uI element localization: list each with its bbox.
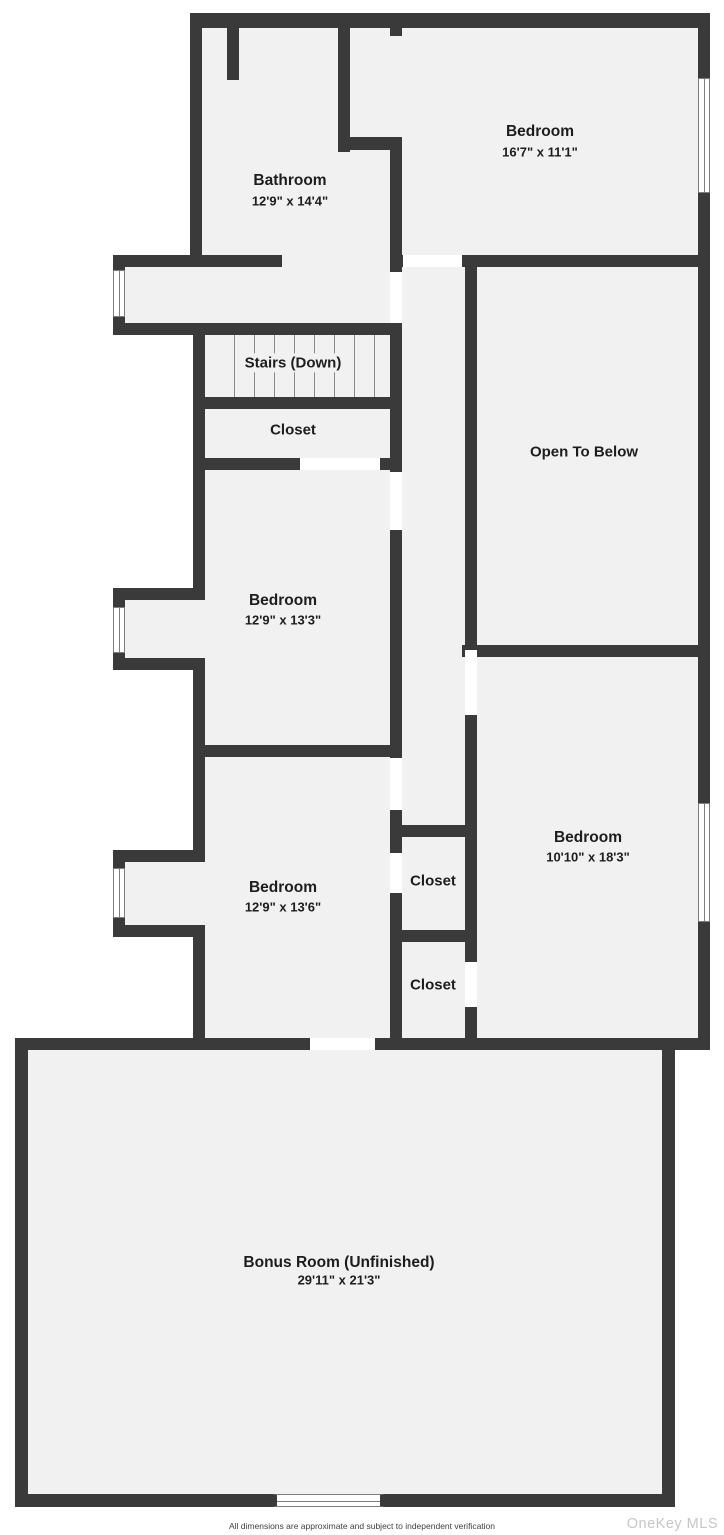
window-hallway xyxy=(113,270,125,317)
label-bedroom-lower-name: Bedroom xyxy=(249,879,317,897)
wall-bonus-left xyxy=(15,1038,28,1507)
wall-alcove3-bottom xyxy=(113,925,205,937)
wall-alcove3-top xyxy=(113,850,205,862)
wall-bedroom-mid-bottom xyxy=(193,745,402,757)
label-bedroom-mid-name: Bedroom xyxy=(249,592,317,610)
wall-closet1-top xyxy=(390,825,477,837)
door-bedroom-mid xyxy=(390,472,402,530)
label-bedroom-mid-dims: 12'9" x 13'3" xyxy=(245,614,321,629)
onekey-mls-watermark: OneKey MLS xyxy=(627,1516,718,1532)
label-stairs: Stairs (Down) xyxy=(240,353,347,372)
bedroom-mid-alcove xyxy=(125,600,205,658)
wall-bathroom-stub xyxy=(227,28,239,80)
room-bedroom-lower xyxy=(205,757,390,1038)
wall-hall-bottom xyxy=(113,323,402,335)
label-closet-1: Closet xyxy=(410,872,456,889)
wall-bedroom-top-stub xyxy=(390,23,402,36)
label-open-to-below: Open To Below xyxy=(530,443,638,460)
door-bonus-room xyxy=(310,1038,375,1050)
label-bedroom-lower-dims: 12'9" x 13'6" xyxy=(245,901,321,916)
floor-plan: Bathroom 12'9" x 14'4" Bedroom 16'7" x 1… xyxy=(0,0,724,1535)
label-bedroom-top-name: Bedroom xyxy=(506,123,574,141)
label-closet-2: Closet xyxy=(410,976,456,993)
wall-bonus-right xyxy=(662,1050,675,1507)
wall-nook-bottom xyxy=(338,137,402,150)
bedroom-lower-alcove xyxy=(125,862,205,925)
door-closet-1 xyxy=(390,853,402,893)
label-bedroom-right-name: Bedroom xyxy=(554,829,622,847)
door-bedroom-lower xyxy=(390,758,402,810)
wall-alcove2-bottom xyxy=(113,658,205,670)
wall-stairs-bottom xyxy=(193,397,402,409)
corridor xyxy=(402,267,465,825)
dimensions-disclaimer: All dimensions are approximate and subje… xyxy=(229,1521,495,1531)
wall-alcove2-top xyxy=(113,588,205,600)
wall-left-upper xyxy=(190,13,202,267)
hallway xyxy=(125,267,402,323)
window-bedroom-top xyxy=(698,78,710,193)
door-hall-to-corridor xyxy=(390,272,402,323)
wall-otb-bottom xyxy=(462,645,710,657)
wall-hall-top xyxy=(113,255,282,267)
label-bonus-dims: 29'11" x 21'3" xyxy=(298,1274,381,1289)
door-bedroom-top xyxy=(403,255,462,267)
window-bedroom-right xyxy=(698,803,710,922)
label-closet-upper: Closet xyxy=(270,421,316,438)
room-bedroom-top xyxy=(402,28,698,255)
window-bonus-room xyxy=(272,1494,385,1507)
label-bedroom-right-dims: 10'10" x 18'3" xyxy=(546,851,630,866)
label-bathroom-dims: 12'9" x 14'4" xyxy=(252,195,328,210)
wall-bathroom-right xyxy=(338,23,350,152)
label-bathroom-name: Bathroom xyxy=(253,172,326,190)
window-bedroom-mid xyxy=(113,607,125,653)
wall-top-exterior xyxy=(190,13,710,28)
wall-left-mid-3 xyxy=(193,925,205,1048)
door-closet-2 xyxy=(465,962,477,1007)
label-bedroom-top-dims: 16'7" x 11'1" xyxy=(502,146,578,161)
door-closet-upper xyxy=(300,458,380,470)
wall-closet1-bottom xyxy=(390,930,477,942)
label-bonus-name: Bonus Room (Unfinished) xyxy=(243,1254,434,1272)
room-bedroom-right xyxy=(477,657,698,1038)
window-bedroom-lower xyxy=(113,868,125,918)
door-bedroom-right xyxy=(465,650,477,715)
